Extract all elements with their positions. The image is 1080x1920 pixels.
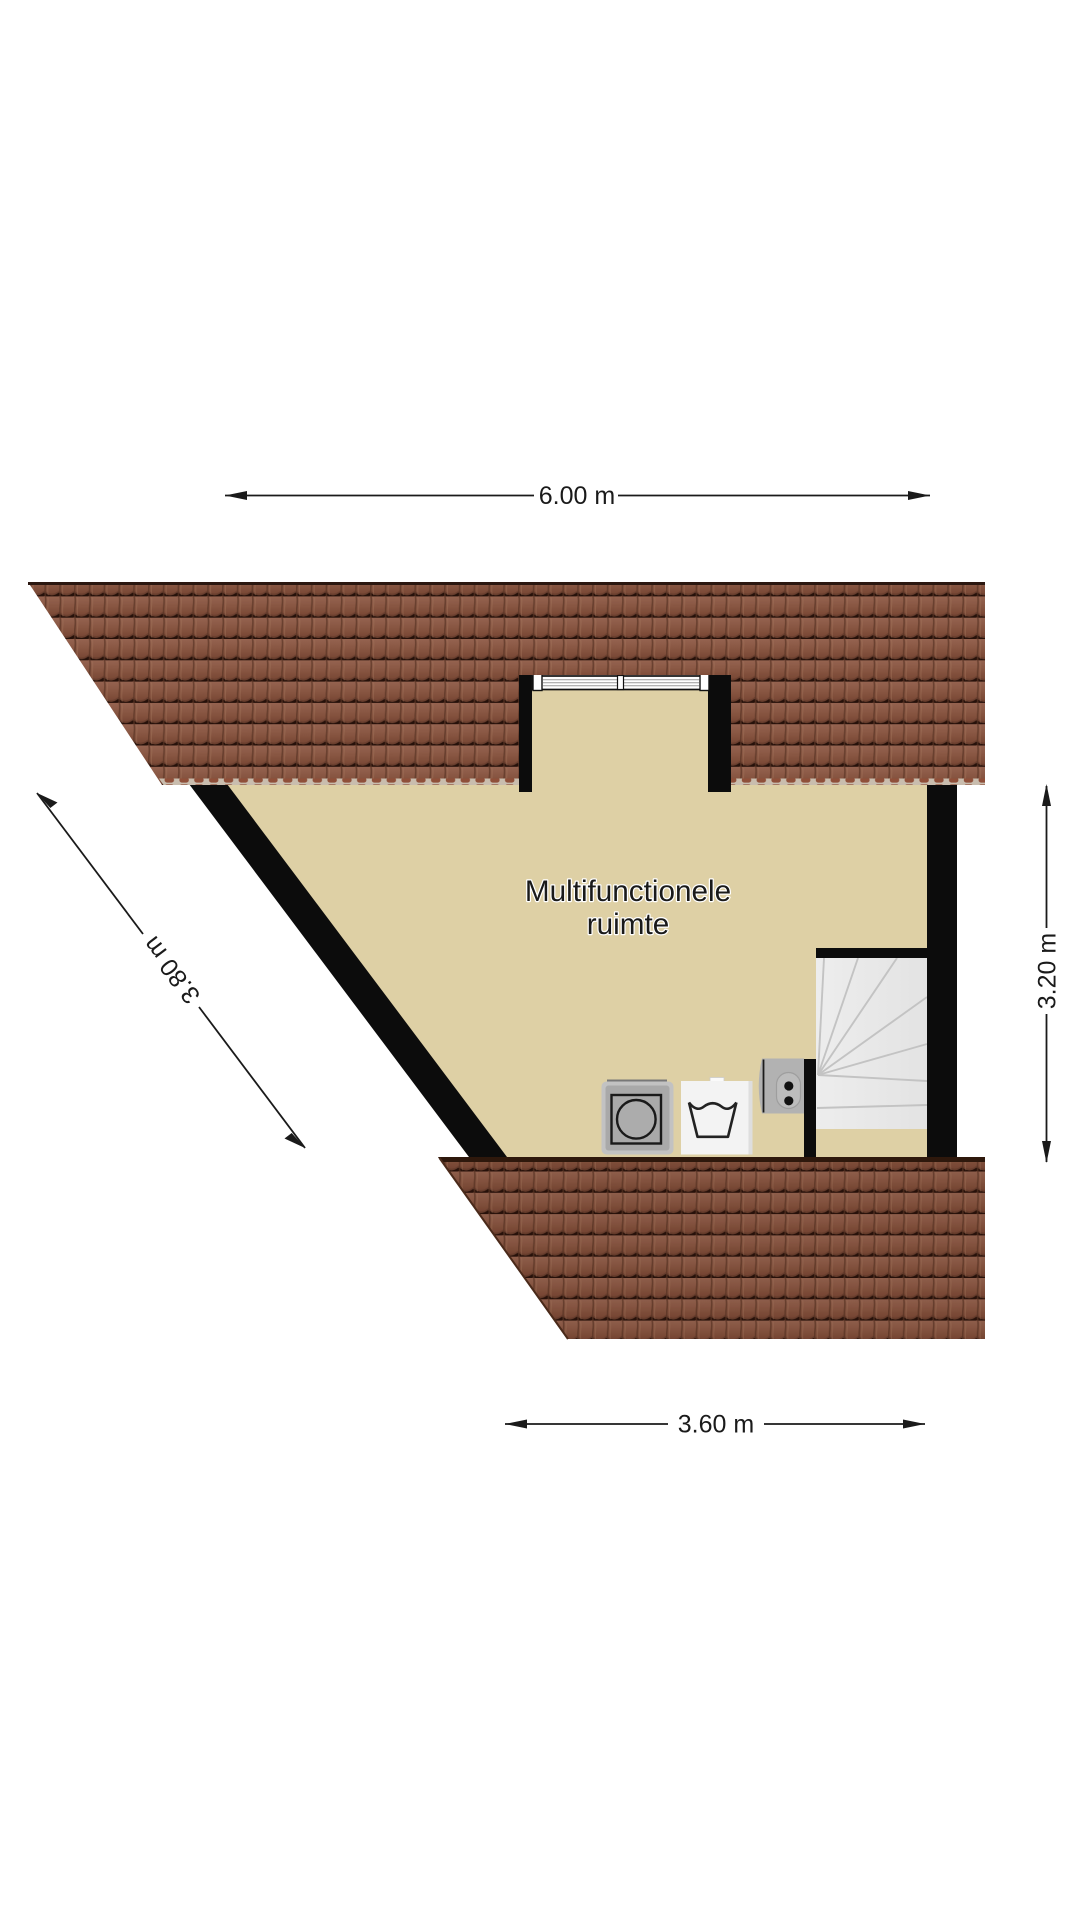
svg-text:6.00 m: 6.00 m (539, 482, 615, 510)
svg-text:3.20 m: 3.20 m (1034, 933, 1062, 1009)
svg-text:Multifunctionele: Multifunctionele (525, 875, 731, 908)
svg-text:3.60 m: 3.60 m (678, 1411, 754, 1439)
svg-text:ruimte: ruimte (587, 908, 669, 941)
